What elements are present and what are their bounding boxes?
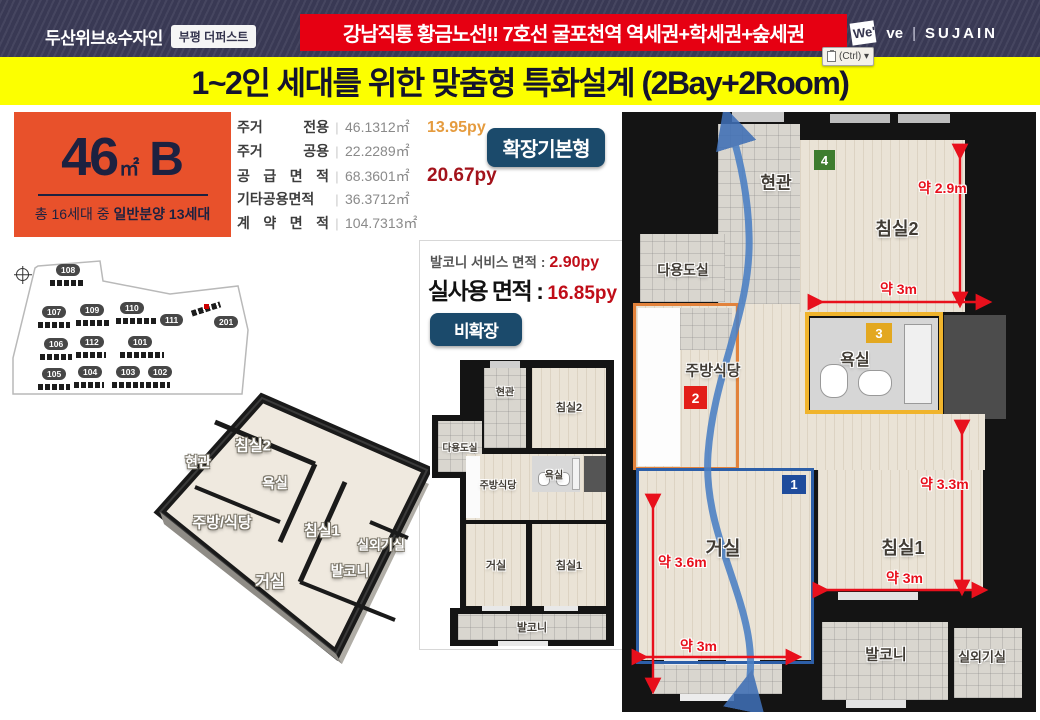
room-label-utility: 다용도실 (443, 440, 478, 454)
building-footprint (146, 382, 170, 388)
room-label-kitchen: 주방식당 (685, 360, 740, 381)
room-label-kitchen: 주방식당 (480, 477, 517, 492)
dim-living-height: 약 3.6m (658, 552, 707, 572)
paste-options-button[interactable]: (Ctrl) ▾ (822, 47, 874, 66)
actual-use-area: 실사용 면적 : 16.85py (428, 272, 643, 306)
entry-door (732, 112, 784, 122)
dim-bedroom2-height: 약 2.9m (918, 178, 967, 198)
area-table: 주거 전용 | 46.1312㎡ 13.95py 주거 공용 | 22.2289… (237, 117, 497, 237)
building-pill: 102 (148, 366, 172, 378)
building-footprint (120, 352, 164, 358)
building-pill: 104 (78, 366, 102, 378)
window (830, 114, 890, 123)
iso-room-bedroom1: 침실1 (304, 520, 340, 541)
window (498, 641, 548, 646)
promo-banner: 강남직통 황금노선!! 7호선 굴포천역 역세권+학세권+숲세권 (300, 14, 847, 51)
slide: 두산위브&수자인 부평 더퍼스트 강남직통 황금노선!! 7호선 굴포천역 역세… (0, 0, 1040, 720)
building-pill: 111 (160, 314, 183, 326)
room-label-bedroom2: 침실2 (556, 399, 582, 415)
room (484, 368, 526, 448)
iso-room-bath: 욕실 (262, 473, 288, 493)
marker-4: 4 (814, 150, 835, 170)
building-footprint (40, 354, 72, 360)
building-pill: 201 (214, 316, 238, 328)
kitchen-counter (466, 456, 480, 518)
table-row: 기타공용면적 | 36.3712㎡ (237, 189, 497, 213)
iso-floorplan: 현관 침실2 욕실 주방/식당 침실1 실외기실 발코니 거실 (140, 392, 430, 707)
iso-room-outdoor: 실외기실 (357, 535, 405, 554)
logo-ve: ve (886, 25, 903, 42)
table-row: 공 급 면 적 | 68.3601㎡ 20.67py (237, 165, 497, 189)
small-floorplan: 현관 침실2 다용도실 주방식당 욕실 거실 침실1 발코니 (432, 360, 620, 648)
room-entrance (718, 124, 800, 304)
room-label-bedroom1: 침실1 (556, 557, 582, 573)
unit-size: 46 ㎡ B (61, 126, 184, 188)
dim-bedroom1-width: 약 3m (886, 568, 923, 588)
brand: 두산위브&수자인 부평 더퍼스트 (45, 24, 256, 49)
unit-households: 총 16세대 중 일반분양 13세대 (35, 204, 211, 224)
building-footprint (50, 280, 84, 286)
iso-room-living: 거실 (255, 568, 284, 592)
marker-1: 1 (782, 475, 806, 494)
window (846, 700, 906, 708)
logo-divider: | (912, 25, 916, 42)
building-pill: 112 (80, 336, 104, 348)
big-floorplan: 4 3 2 1 현관 다용도실 침실2 주방식당 욕실 거실 침실1 발코니 실… (622, 112, 1036, 712)
room-label-balcony: 발코니 (517, 619, 547, 635)
paste-options-label: (Ctrl) ▾ (839, 51, 869, 62)
shaft (584, 456, 606, 492)
room-label-utility: 다용도실 (657, 260, 709, 280)
divider (38, 194, 208, 196)
iso-room-balcony: 발코니 (331, 561, 370, 581)
brand-name: 두산위브&수자인 (45, 24, 163, 49)
building-pill: 110 (120, 302, 144, 314)
room-label-balcony: 발코니 (865, 644, 906, 665)
table-row: 계 약 면 적 | 104.7313㎡ (237, 213, 497, 237)
building-pill: 108 (56, 264, 80, 276)
room-label-entrance: 현관 (760, 169, 791, 194)
expand-basic-badge: 확장기본형 (487, 128, 605, 167)
room-label-bath: 욕실 (545, 467, 563, 482)
building-pill: 106 (44, 338, 68, 350)
sujain-logo: SUJAIN (925, 25, 998, 42)
room-label-entrance: 현관 (496, 384, 514, 399)
window (898, 114, 950, 123)
window (680, 694, 734, 701)
shaft (944, 315, 1006, 419)
building-pill: 101 (128, 336, 152, 348)
marker-2: 2 (684, 386, 707, 409)
compass-icon (16, 268, 29, 281)
room-label-living: 거실 (706, 534, 741, 561)
window (544, 606, 578, 611)
weve-logo-icon: We' (851, 20, 881, 46)
room-label-bedroom2: 침실2 (875, 215, 918, 241)
living-balcony (652, 664, 782, 694)
clipboard-icon (827, 51, 836, 62)
building-footprint (116, 318, 156, 324)
building-footprint (76, 352, 106, 358)
table-row: 주거 전용 | 46.1312㎡ 13.95py (237, 117, 497, 141)
site-plan: 108 107 109 110 111 201 106 112 101 105 … (8, 256, 250, 396)
building-pill: 109 (80, 304, 104, 316)
iso-room-bedroom2: 침실2 (235, 435, 271, 456)
dim-bedroom1-height: 약 3.3m (920, 474, 969, 494)
building-footprint (38, 322, 70, 328)
non-expand-badge: 비확장 (430, 313, 522, 346)
highlight-marker (204, 304, 209, 309)
page-title: 1~2인 세대를 위한 맞춤형 특화설계 (2Bay+2Room) (192, 58, 849, 104)
unit-type-card: 46 ㎡ B 총 16세대 중 일반분양 13세대 (14, 112, 231, 237)
balcony-service-area: 발코니 서비스 면적 : 2.90py (430, 251, 640, 272)
title-bar: 1~2인 세대를 위한 맞춤형 특화설계 (2Bay+2Room) (0, 57, 1040, 105)
building-footprint (76, 320, 110, 326)
building-pill: 105 (42, 368, 66, 380)
hall (807, 414, 985, 470)
room-label-outdoor: 실외기실 (958, 647, 1006, 666)
table-row: 주거 공용 | 22.2289㎡ (237, 141, 497, 165)
building-pill: 107 (42, 306, 66, 318)
building-pill: 103 (116, 366, 140, 378)
iso-room-entrance: 현관 (185, 452, 211, 472)
building-footprint (38, 384, 70, 390)
brand-badge: 부평 더퍼스트 (171, 25, 257, 48)
window (482, 606, 510, 611)
dim-bedroom2-width: 약 3m (880, 279, 917, 299)
room-label-bath: 욕실 (840, 346, 869, 370)
tub (572, 458, 580, 490)
dim-living-width: 약 3m (680, 636, 717, 656)
iso-room-kitchen: 주방/식당 (192, 512, 251, 533)
marker-3: 3 (866, 323, 892, 343)
building-footprint (112, 382, 144, 388)
logo: We' ve | SUJAIN (851, 20, 998, 46)
door (490, 361, 520, 368)
window (838, 592, 918, 600)
room-label-living: 거실 (486, 557, 506, 573)
building-footprint (74, 382, 104, 388)
header-bar: 두산위브&수자인 부평 더퍼스트 강남직통 황금노선!! 7호선 굴포천역 역세… (0, 0, 1040, 57)
room-label-bedroom1: 침실1 (881, 534, 924, 560)
